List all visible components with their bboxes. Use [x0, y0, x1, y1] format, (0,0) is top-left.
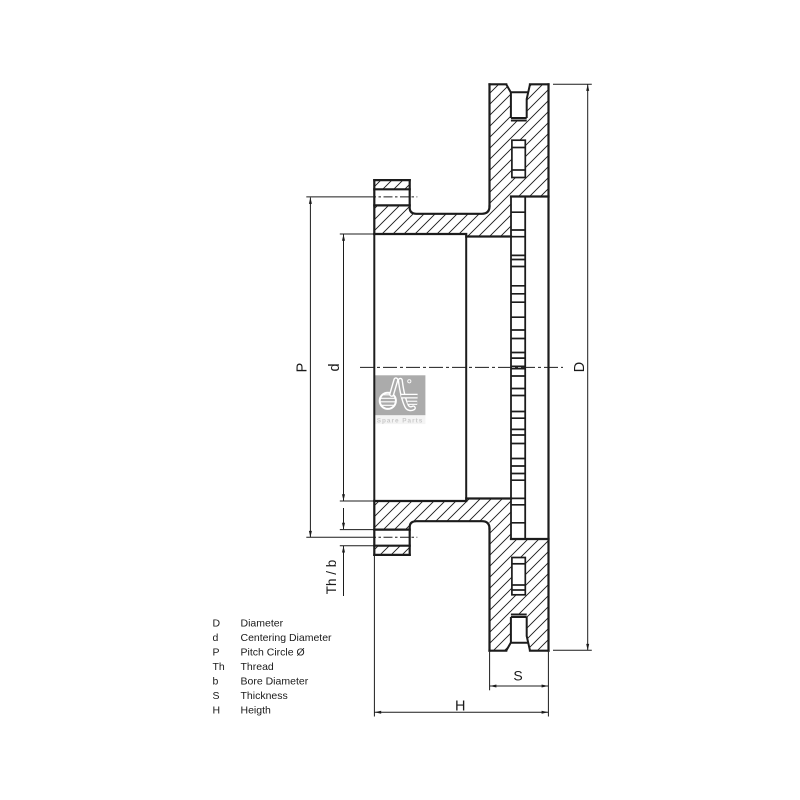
- svg-text:D: D: [213, 617, 221, 629]
- svg-text:Bore Diameter: Bore Diameter: [241, 675, 309, 687]
- svg-text:H: H: [455, 698, 465, 714]
- svg-text:Thread: Thread: [241, 661, 274, 673]
- svg-text:H: H: [213, 704, 221, 716]
- svg-text:d: d: [213, 632, 219, 644]
- svg-text:d: d: [327, 363, 343, 371]
- svg-text:Centering Diameter: Centering Diameter: [241, 632, 333, 644]
- svg-text:D: D: [572, 362, 588, 372]
- svg-text:S: S: [213, 690, 220, 702]
- svg-text:Heigth: Heigth: [241, 704, 272, 716]
- svg-text:Thickness: Thickness: [241, 690, 288, 702]
- svg-text:Diameter: Diameter: [241, 617, 284, 629]
- svg-text:P: P: [213, 646, 220, 658]
- svg-text:S: S: [513, 668, 522, 684]
- svg-text:P: P: [294, 363, 310, 373]
- svg-text:b: b: [213, 675, 219, 687]
- svg-text:Th: Th: [213, 661, 225, 673]
- svg-text:Th / b: Th / b: [324, 560, 339, 595]
- svg-text:Spare Parts: Spare Parts: [377, 418, 424, 425]
- svg-text:Pitch Circle Ø: Pitch Circle Ø: [241, 646, 305, 658]
